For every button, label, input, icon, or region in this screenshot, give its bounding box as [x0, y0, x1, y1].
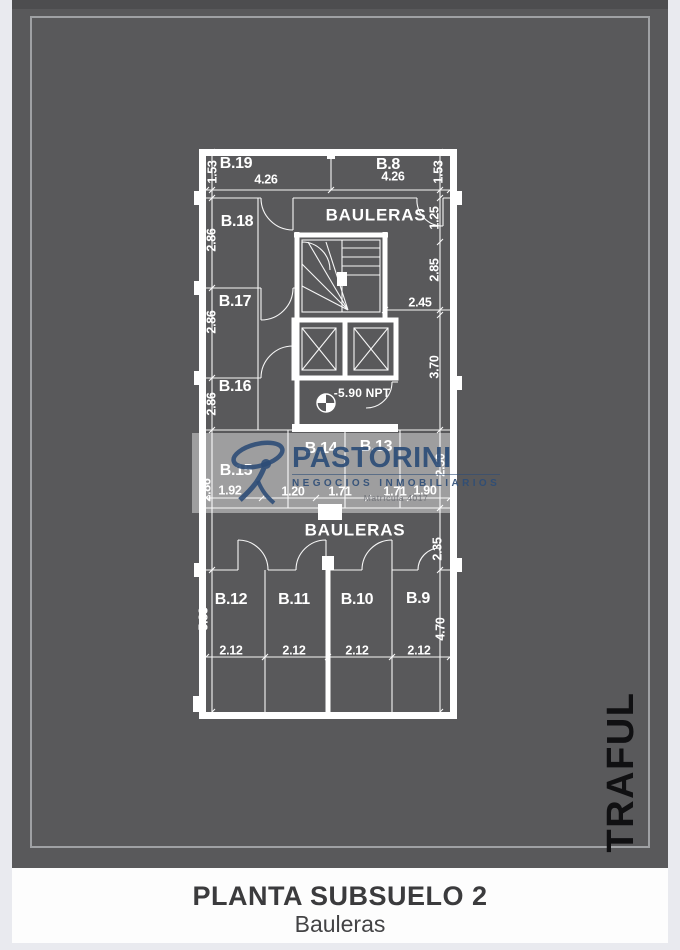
npt-label: -5.90 NPT	[334, 386, 391, 400]
dim-label: 2.86	[204, 228, 218, 251]
dim-label: 2.86	[199, 478, 213, 501]
dim-label: 2.35	[430, 537, 444, 560]
dim-label: 2.45	[408, 295, 431, 309]
room-label: B.11	[278, 591, 310, 608]
page-subtitle: Bauleras	[12, 911, 668, 937]
floor-plan-svg: B.19B.8B.18B.17B.16B.15B.14B.13B.12B.11B…	[178, 130, 478, 740]
room-label: B.14	[305, 440, 338, 457]
side-label-traful: TRAFUL	[599, 687, 643, 857]
room-label: B.17	[219, 293, 252, 310]
dim-label: 2.50	[433, 453, 447, 476]
dim-label: 4.26	[254, 172, 277, 186]
footer: PLANTA SUBSUELO 2 Bauleras	[12, 868, 668, 943]
room-label: B.19	[220, 155, 253, 172]
dim-label: 2.12	[282, 643, 305, 657]
dim-label: 2.86	[204, 310, 218, 333]
level-marker-icon	[317, 394, 335, 412]
dim-label: 1.25	[427, 206, 441, 229]
dim-label: 1.20	[281, 484, 304, 498]
dim-label: 5.83	[196, 607, 210, 630]
room-label: B.10	[341, 591, 374, 608]
room-label: B.15	[220, 462, 253, 479]
room-label: B.13	[360, 438, 393, 455]
dim-label: 3.70	[427, 355, 441, 378]
dim-label: 1.71	[383, 484, 406, 498]
bottom-strip	[12, 943, 668, 950]
dim-label: 2.12	[345, 643, 368, 657]
dim-label: 1.90	[413, 483, 436, 497]
dim-label: 2.86	[204, 392, 218, 415]
dim-label: 2.12	[219, 643, 242, 657]
dim-label: 1.53	[431, 160, 445, 183]
dim-label: 1.53	[205, 160, 219, 183]
room-label: B.16	[219, 378, 252, 395]
dim-label: 4.26	[381, 169, 404, 183]
room-label: B.12	[215, 591, 248, 608]
page-title: PLANTA SUBSUELO 2	[12, 881, 668, 911]
area-label: BAULERAS	[305, 520, 406, 539]
plan-labels: B.19B.8B.18B.17B.16B.15B.14B.13B.12B.11B…	[196, 155, 447, 657]
room-label: B.18	[221, 213, 254, 230]
room-label: B.9	[406, 590, 430, 607]
area-label: BAULERAS	[326, 205, 427, 224]
dim-label: 4.70	[433, 617, 447, 640]
dim-label: 1.92	[218, 483, 241, 497]
dim-label: 2.12	[407, 643, 430, 657]
staircase	[294, 232, 388, 432]
poster-top-edge	[12, 0, 668, 9]
dim-label: 1.71	[328, 484, 351, 498]
dim-label: 2.85	[427, 258, 441, 281]
wall-stub	[322, 556, 334, 570]
elevator	[292, 320, 398, 432]
